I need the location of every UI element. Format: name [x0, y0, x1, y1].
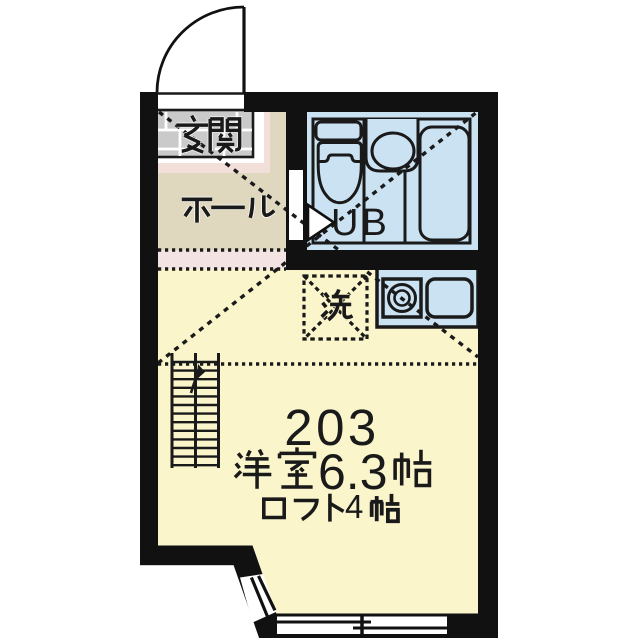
svg-text:4: 4	[345, 488, 363, 525]
svg-text:UB: UB	[331, 202, 390, 244]
